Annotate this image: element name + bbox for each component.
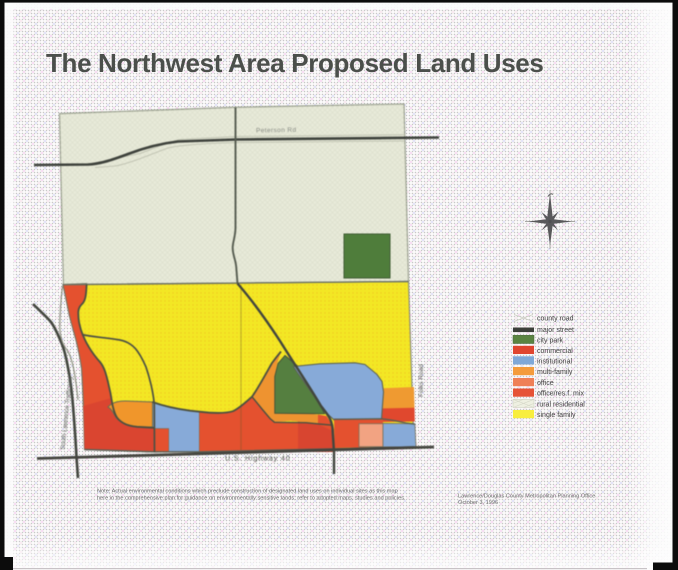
svg-text:institutional: institutional [537, 359, 572, 366]
svg-text:city park: city park [537, 338, 564, 345]
svg-text:here in the comprehensive plan: here in the comprehensive plan for guida… [97, 496, 406, 502]
svg-text:office: office [537, 380, 554, 387]
svg-text:Folks Road: Folks Road [418, 364, 425, 397]
svg-text:major street: major street [537, 327, 574, 334]
svg-text:Peterson Rd: Peterson Rd [256, 127, 297, 135]
svg-text:commercial: commercial [537, 348, 573, 355]
svg-text:Lawrence/Douglas County Metrop: Lawrence/Douglas County Metropolitan Pla… [458, 494, 595, 500]
svg-text:office/res.f. mix: office/res.f. mix [537, 391, 584, 398]
svg-text:South Lawrence Trafficway: South Lawrence Trafficway [60, 375, 75, 450]
svg-text:county road: county road [537, 316, 574, 323]
svg-text:multi-family: multi-family [537, 369, 573, 376]
svg-text:U.S. Highway 40: U.S. Highway 40 [225, 456, 291, 463]
svg-text:Note: Actual environmental con: Note: Actual environmental conditions wh… [97, 489, 398, 495]
svg-text:rural residential: rural residential [537, 402, 585, 409]
svg-text:single family: single family [537, 412, 576, 419]
svg-text:The Northwest Area Proposed La: The Northwest Area Proposed Land Uses [46, 48, 544, 78]
svg-text:October 3, 1996: October 3, 1996 [458, 500, 498, 506]
